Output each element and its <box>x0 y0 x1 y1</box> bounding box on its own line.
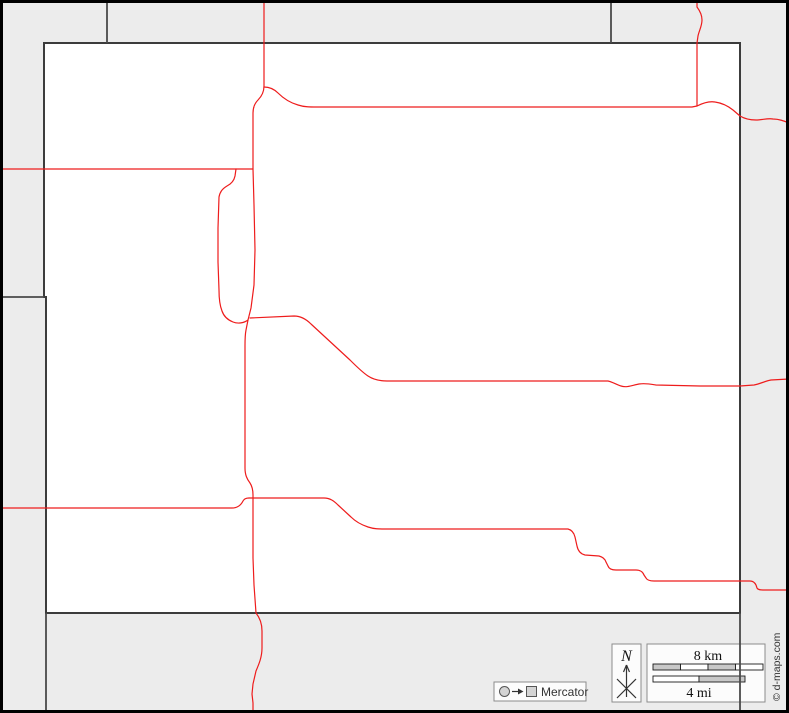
scale-bar-km <box>653 664 763 670</box>
scale-bar-mi <box>653 676 745 682</box>
km-bar-segment-3 <box>708 664 736 670</box>
scale-mi-label: 4 mi <box>686 686 711 701</box>
mi-bar-segment-2 <box>699 676 745 682</box>
compass: N <box>612 644 641 702</box>
county-shape <box>44 43 740 613</box>
mi-bar-segment-1 <box>653 676 699 682</box>
projection-legend: Mercator <box>494 682 588 701</box>
county-map-svg: Mercator N 8 km 4 mi © d-m <box>0 0 789 713</box>
projection-label: Mercator <box>541 685 588 699</box>
scale-legend: 8 km 4 mi <box>647 644 765 702</box>
projected-square-icon <box>527 687 537 697</box>
map-container: Mercator N 8 km 4 mi © d-m <box>0 0 789 713</box>
globe-circle-icon <box>500 687 510 697</box>
credit-text: © d-maps.com <box>771 632 783 701</box>
north-label: N <box>620 648 633 665</box>
scale-km-label: 8 km <box>694 649 723 664</box>
km-bar-segment-1 <box>653 664 681 670</box>
km-bar-segment-2 <box>681 664 709 670</box>
